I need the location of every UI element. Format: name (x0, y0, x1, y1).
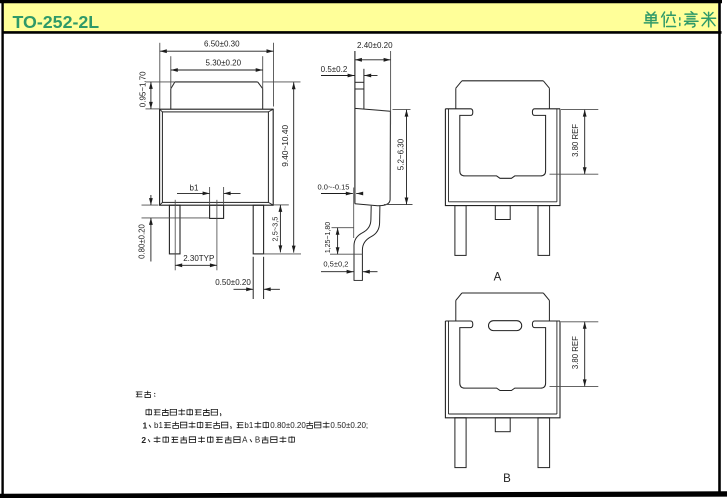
svg-text:6.50±0.30: 6.50±0.30 (204, 39, 240, 48)
svg-text:0.80±0.20: 0.80±0.20 (138, 224, 147, 259)
svg-text:0.50±0.20: 0.50±0.20 (215, 278, 251, 287)
svg-text:1,25~1,80: 1,25~1,80 (325, 222, 332, 253)
svg-text:2: 2 (141, 435, 146, 445)
svg-text:B: B (503, 473, 511, 485)
svg-text:B: B (255, 436, 260, 445)
svg-text:A: A (242, 436, 248, 445)
svg-text:5.2~6.30: 5.2~6.30 (396, 138, 405, 170)
svg-text:b1: b1 (190, 184, 199, 193)
svg-text:A: A (494, 272, 502, 284)
svg-text:3.80 REF: 3.80 REF (571, 336, 580, 369)
svg-text:b1: b1 (244, 421, 253, 430)
svg-text:0.0~-0.15: 0.0~-0.15 (318, 182, 350, 191)
svg-text:TO-252-2L: TO-252-2L (13, 12, 100, 32)
svg-text:0.5±0.2: 0.5±0.2 (321, 65, 348, 74)
svg-text:2,5~3,5: 2,5~3,5 (271, 217, 280, 242)
svg-text:2.40±0.20: 2.40±0.20 (357, 41, 393, 50)
svg-text:0,5±0,2: 0,5±0,2 (323, 260, 348, 269)
svg-text:9.40~10.40: 9.40~10.40 (280, 125, 290, 167)
svg-text:b1: b1 (154, 421, 163, 430)
svg-text:5.30±0.20: 5.30±0.20 (206, 59, 242, 68)
svg-text:1: 1 (143, 420, 148, 430)
svg-text:3.80 REF: 3.80 REF (571, 124, 580, 157)
svg-text:2.30TYP: 2.30TYP (183, 254, 214, 263)
svg-text:0.50±0.20;: 0.50±0.20; (330, 421, 368, 430)
svg-text:0.80±0.20: 0.80±0.20 (270, 421, 306, 430)
svg-text:0.95~1.70: 0.95~1.70 (138, 71, 147, 107)
